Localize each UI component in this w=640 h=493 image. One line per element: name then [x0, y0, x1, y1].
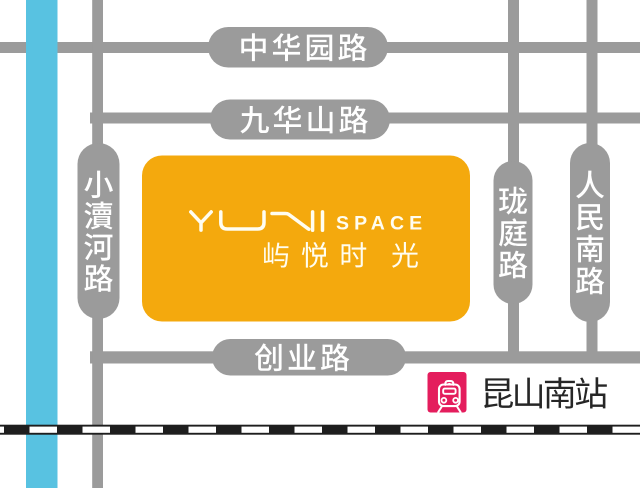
svg-text:SPACE: SPACE: [336, 212, 427, 234]
